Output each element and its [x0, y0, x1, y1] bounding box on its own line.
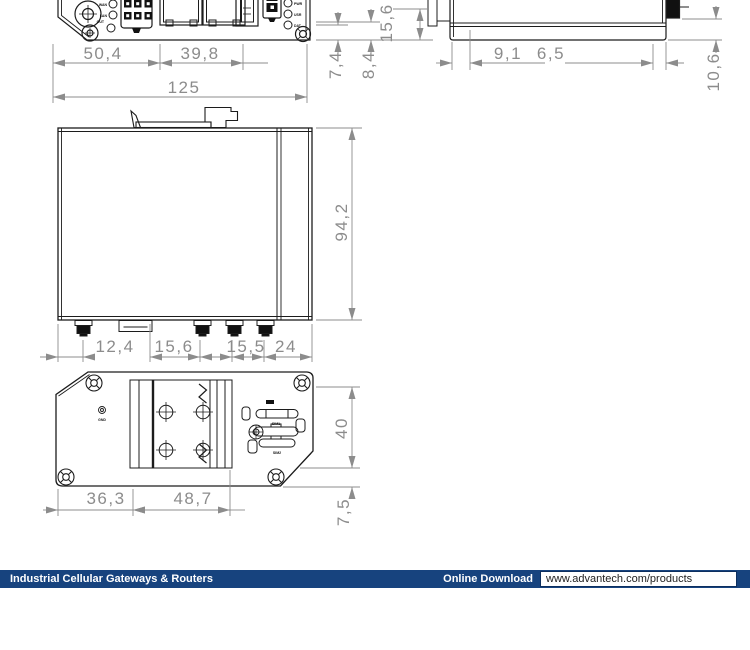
- din-mount-plate: [130, 380, 232, 468]
- led-pwr: [284, 0, 292, 7]
- dim-top-b3: 15,5: [226, 337, 265, 356]
- online-download-label: Online Download: [443, 573, 533, 585]
- screw-bottom-left: [58, 469, 74, 485]
- led-out: [107, 24, 115, 32]
- front-screw: [296, 27, 311, 42]
- dim-front-w2: 39,8: [180, 44, 219, 63]
- din-rail-clip-top: [131, 108, 238, 128]
- datasheet-page: WAN LAN OUT PWR USR DAT: [0, 0, 750, 650]
- cable-notch: [119, 321, 152, 332]
- led-lan: [109, 11, 117, 19]
- sim-tray-3: [259, 439, 295, 447]
- led-label-dat: DAT: [294, 24, 302, 28]
- dim-bot-b2: 48,7: [173, 489, 212, 508]
- footer-bar: Industrial Cellular Gateways & Routers O…: [0, 570, 750, 588]
- sim1-label: SIM1: [272, 422, 280, 426]
- io-connector-2pin: [263, 0, 281, 22]
- dim-side-d3: 10,6: [704, 52, 723, 91]
- dim-bot-h2: 7,5: [334, 498, 353, 526]
- spring-clip-bottom: [199, 444, 207, 463]
- power-connector-6pin: [121, 0, 152, 33]
- footer-url-link[interactable]: www.advantech.com/products: [540, 571, 737, 587]
- bottom-view-labels: GND SIM1 SIM2: [98, 418, 281, 455]
- sma-connector-1: [75, 321, 92, 337]
- top-view: [58, 108, 312, 337]
- dim-top-b4: 24: [275, 337, 297, 356]
- led-usr: [284, 10, 292, 18]
- antenna-connectors-bottom: [75, 321, 274, 337]
- dim-front-h3: 15,6: [377, 3, 396, 42]
- ethernet-port-2: [203, 0, 245, 26]
- screw-top-left: [86, 375, 102, 391]
- sim2-label: SIM2: [273, 451, 281, 455]
- sma-connector-2: [194, 321, 211, 337]
- spring-clip-top: [199, 384, 207, 403]
- dim-front-h2: 8,4: [359, 51, 378, 79]
- dim-side-d1: 9,1: [494, 44, 522, 63]
- led-label-out: OUT: [97, 20, 105, 24]
- dim-bot-h: 40: [332, 417, 351, 439]
- technical-drawing: WAN LAN OUT PWR USR DAT: [0, 0, 750, 570]
- dim-top-h: 94,2: [332, 202, 351, 241]
- side-body-outline: [450, 0, 666, 40]
- sma-connector-3: [226, 321, 243, 337]
- dimension-labels: 50,4 39,8 125 7,4 8,4 15,6 9,1 6,5 10,6 …: [83, 3, 723, 526]
- led-wan: [109, 0, 117, 8]
- ground-screw: [99, 407, 106, 414]
- side-connector: [667, 0, 680, 18]
- dim-front-total: 125: [168, 78, 201, 97]
- dim-front-w1: 50,4: [83, 44, 122, 63]
- cutout-3: [248, 440, 257, 453]
- footer-section-title: Industrial Cellular Gateways & Routers: [0, 573, 213, 585]
- dim-side-d2: 6,5: [537, 44, 565, 63]
- dim-top-b2: 15,6: [154, 337, 193, 356]
- led-label-usr: USR: [294, 13, 302, 17]
- led-label-lan: LAN: [100, 14, 108, 18]
- sim-tray-1: [256, 410, 298, 419]
- dim-bot-b1: 36,3: [86, 489, 125, 508]
- led-label-wan: WAN: [99, 3, 108, 7]
- sma-connector-4: [257, 321, 274, 337]
- top-body-outline: [58, 128, 312, 320]
- din-clip-side: [428, 0, 450, 26]
- dim-front-h1: 7,4: [326, 51, 345, 79]
- side-view: [428, 0, 689, 40]
- led-dat: [284, 21, 292, 29]
- din-clip-hook: [205, 108, 238, 128]
- cutout-1: [242, 407, 250, 420]
- screw-top-right: [294, 375, 310, 391]
- footer-download-area: Online Download www.advantech.com/produc…: [443, 570, 750, 588]
- dimension-lines: [40, 6, 722, 516]
- sim-slot-area: [242, 400, 305, 453]
- led-cluster-right: [284, 0, 292, 29]
- sim-blob: [266, 400, 274, 404]
- led-label-pwr: PWR: [294, 2, 303, 6]
- gnd-label: GND: [98, 418, 106, 422]
- led-cluster-left: [107, 0, 117, 32]
- dim-top-b1: 12,4: [95, 337, 134, 356]
- ethernet-port-1: [160, 0, 202, 26]
- screw-bottom-right: [268, 469, 284, 485]
- bottom-view: [56, 372, 313, 486]
